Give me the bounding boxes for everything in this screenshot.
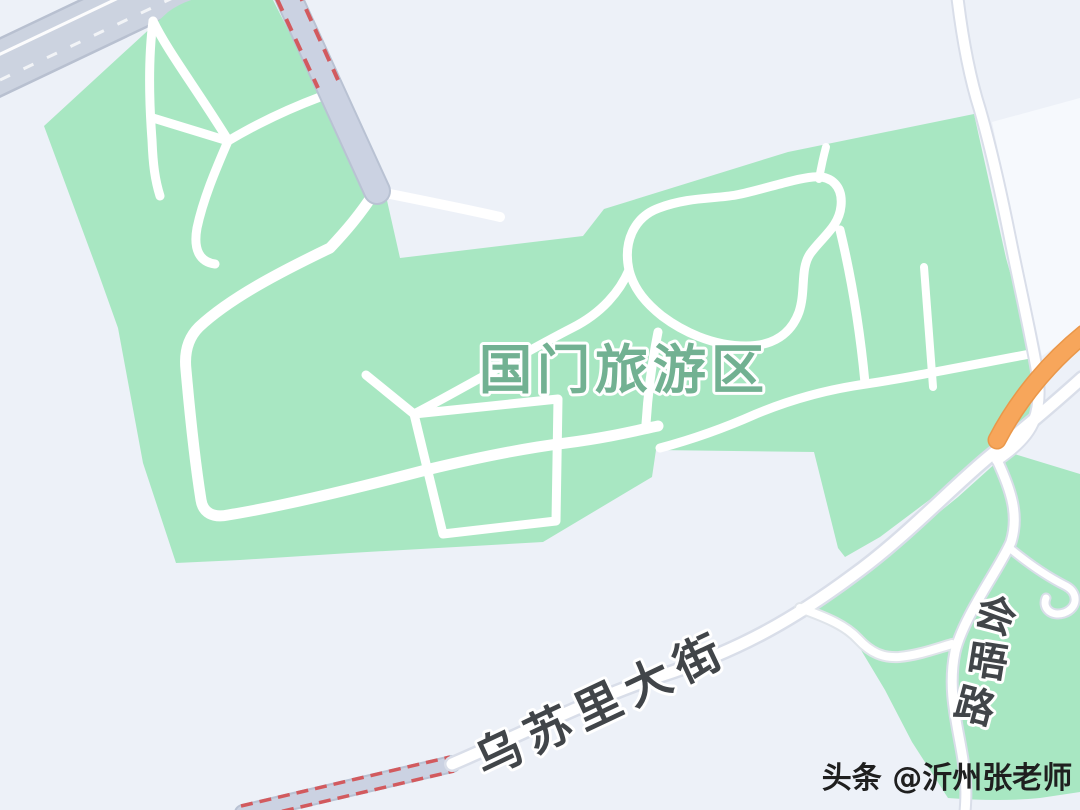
map-vector-layer: 国门旅游区 乌苏里大街 会 晤 路 头条 @沂州张老师 (0, 0, 1080, 810)
watermark-text: 头条 @沂州张老师 (822, 761, 1072, 796)
map-canvas[interactable]: 国门旅游区 乌苏里大街 会 晤 路 头条 @沂州张老师 (0, 0, 1080, 810)
border-strip-bottom (241, 757, 454, 810)
area-label: 国门旅游区 (479, 340, 769, 401)
street-label-wusuli: 乌苏里大街 (466, 621, 738, 787)
svg-text:晤: 晤 (964, 636, 1011, 688)
path-junction-stub (380, 192, 500, 217)
